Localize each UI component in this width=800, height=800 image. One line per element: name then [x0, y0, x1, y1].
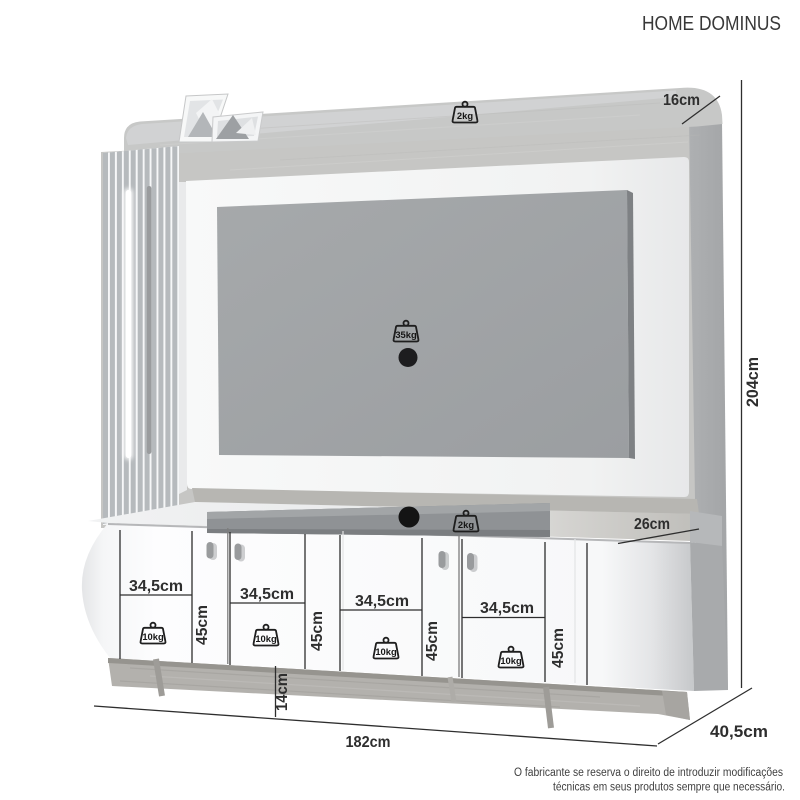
svg-text:204cm: 204cm [744, 357, 762, 407]
svg-text:45cm: 45cm [424, 621, 441, 661]
svg-text:26cm: 26cm [634, 516, 670, 533]
svg-text:34,5cm: 34,5cm [240, 586, 294, 603]
svg-text:34,5cm: 34,5cm [355, 593, 409, 610]
svg-text:técnicas em seus produtos semp: técnicas em seus produtos sempre que nec… [553, 782, 785, 794]
svg-text:16cm: 16cm [663, 92, 700, 109]
svg-text:10kg: 10kg [142, 631, 164, 642]
svg-text:14cm: 14cm [274, 673, 291, 711]
svg-text:10kg: 10kg [375, 646, 397, 657]
svg-text:182cm: 182cm [346, 734, 391, 751]
svg-text:35kg: 35kg [395, 329, 417, 340]
svg-text:10kg: 10kg [500, 655, 522, 666]
svg-text:HOME DOMINUS: HOME DOMINUS [642, 12, 781, 35]
svg-text:O fabricante se reserva o dire: O fabricante se reserva o direito de int… [514, 767, 783, 779]
svg-text:40,5cm: 40,5cm [710, 723, 768, 741]
svg-text:2kg: 2kg [458, 519, 474, 530]
svg-text:2kg: 2kg [457, 110, 473, 121]
svg-text:34,5cm: 34,5cm [480, 600, 534, 617]
svg-text:45cm: 45cm [309, 611, 326, 651]
svg-text:34,5cm: 34,5cm [129, 578, 183, 595]
svg-text:45cm: 45cm [194, 605, 211, 645]
svg-text:45cm: 45cm [550, 628, 567, 668]
svg-text:10kg: 10kg [255, 633, 277, 644]
